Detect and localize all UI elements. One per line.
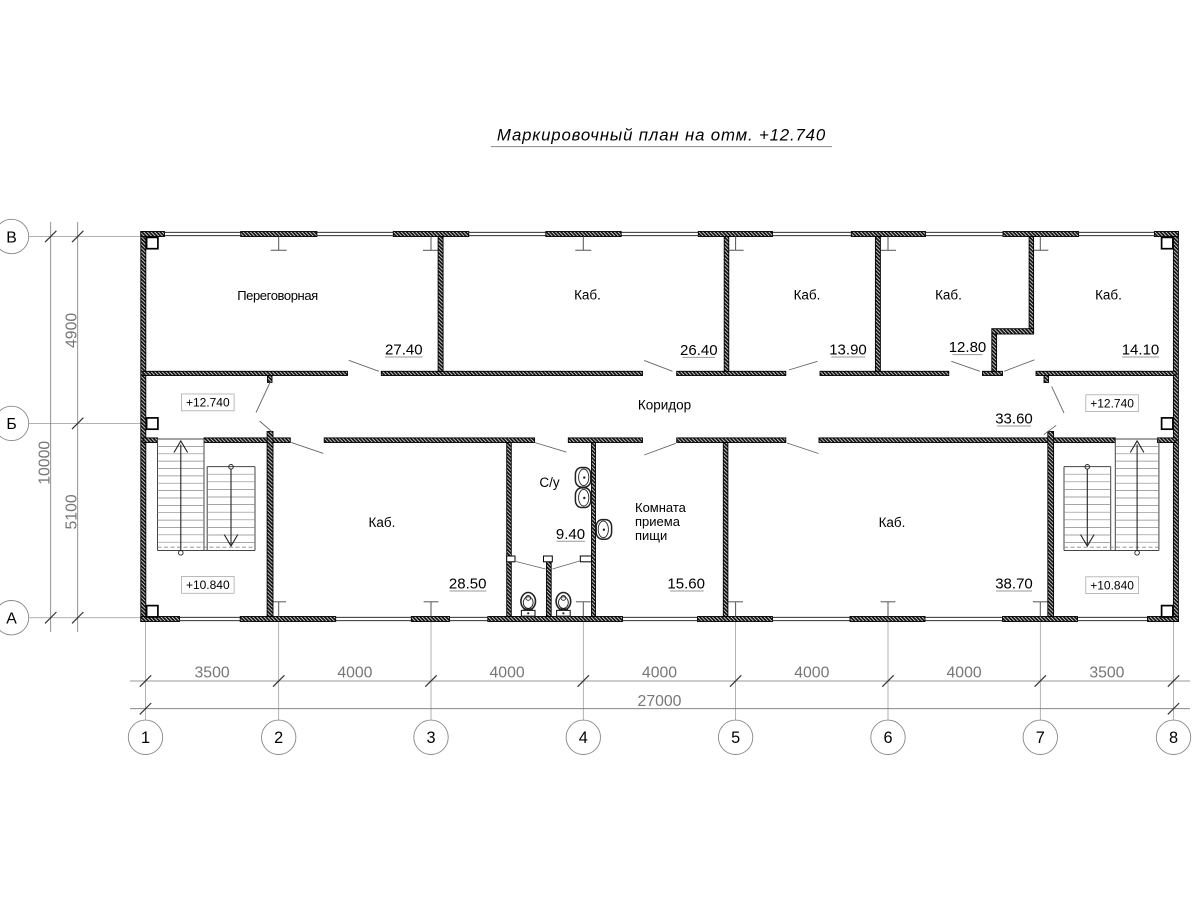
svg-text:4900: 4900 (63, 313, 80, 348)
svg-text:Маркировочный план на отм. +12: Маркировочный план на отм. +12.740 (497, 125, 826, 144)
svg-text:9.40: 9.40 (556, 526, 585, 543)
svg-text:8: 8 (1169, 729, 1178, 747)
svg-text:приема: приема (635, 514, 681, 529)
svg-text:В: В (6, 229, 17, 246)
svg-text:Б: Б (6, 416, 16, 433)
svg-text:Коридор: Коридор (638, 398, 691, 413)
svg-text:6: 6 (883, 729, 892, 747)
svg-text:Каб.: Каб. (935, 288, 962, 303)
svg-text:+10.840: +10.840 (186, 578, 230, 592)
svg-text:С/у: С/у (539, 475, 560, 490)
svg-text:+12.740: +12.740 (186, 396, 230, 410)
svg-text:27.40: 27.40 (385, 342, 423, 359)
svg-text:+10.840: +10.840 (1090, 578, 1134, 592)
svg-text:7: 7 (1036, 729, 1045, 747)
svg-text:28.50: 28.50 (449, 576, 487, 593)
svg-text:14.10: 14.10 (1122, 342, 1160, 359)
svg-text:пищи: пищи (635, 528, 667, 543)
svg-text:5100: 5100 (63, 494, 80, 529)
svg-text:Комната: Комната (635, 500, 687, 515)
svg-text:+12.740: +12.740 (1090, 396, 1134, 410)
svg-text:Каб.: Каб. (368, 515, 395, 530)
svg-text:Каб.: Каб. (574, 288, 601, 303)
svg-text:13.90: 13.90 (829, 342, 867, 359)
svg-text:3: 3 (426, 729, 435, 747)
svg-text:15.60: 15.60 (667, 576, 705, 593)
svg-text:38.70: 38.70 (995, 576, 1033, 593)
svg-text:4: 4 (579, 729, 588, 747)
svg-text:3500: 3500 (1089, 665, 1124, 682)
svg-text:4000: 4000 (337, 665, 372, 682)
svg-text:10000: 10000 (37, 441, 54, 485)
svg-text:А: А (6, 611, 17, 628)
svg-text:4000: 4000 (490, 665, 525, 682)
svg-text:Переговорная: Переговорная (237, 288, 318, 303)
svg-text:12.80: 12.80 (949, 339, 987, 356)
svg-text:4000: 4000 (947, 665, 982, 682)
svg-text:1: 1 (141, 729, 150, 747)
svg-text:2: 2 (274, 729, 283, 747)
svg-text:33.60: 33.60 (995, 411, 1033, 428)
svg-text:26.40: 26.40 (680, 342, 718, 359)
svg-text:27000: 27000 (638, 693, 682, 710)
svg-text:4000: 4000 (794, 665, 829, 682)
svg-text:5: 5 (731, 729, 740, 747)
svg-text:Каб.: Каб. (879, 515, 906, 530)
svg-text:4000: 4000 (642, 665, 677, 682)
svg-text:3500: 3500 (195, 665, 230, 682)
svg-text:Каб.: Каб. (1095, 288, 1122, 303)
svg-text:Каб.: Каб. (794, 288, 821, 303)
